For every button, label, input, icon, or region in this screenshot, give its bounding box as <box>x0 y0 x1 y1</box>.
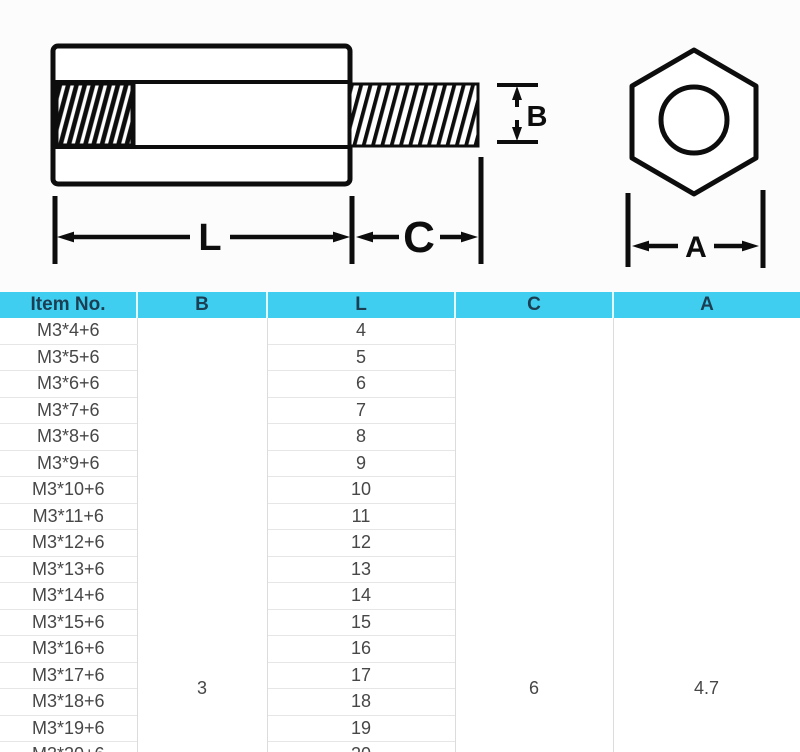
b-up-arrow-icon <box>512 86 522 100</box>
l-value-cell: 15 <box>267 609 455 636</box>
l-right-arrow-icon <box>333 232 350 243</box>
a-merged-cell: 4.7 <box>613 318 800 752</box>
end-view: A <box>628 50 763 268</box>
l-value-cell: 6 <box>267 371 455 398</box>
l-value-cell: 5 <box>267 344 455 371</box>
header-l: L <box>267 292 455 318</box>
c-right-arrow-icon <box>461 232 478 243</box>
c-value: 6 <box>456 675 613 701</box>
l-value-cell: 10 <box>267 477 455 504</box>
standoff-diagram: B L C <box>0 0 800 292</box>
item-no-cell: M3*14+6 <box>0 583 137 610</box>
item-no-cell: M3*12+6 <box>0 530 137 557</box>
item-no-cell: M3*5+6 <box>0 344 137 371</box>
b-down-arrow-icon <box>512 127 522 141</box>
l-value-cell: 18 <box>267 689 455 716</box>
item-no-cell: M3*11+6 <box>0 503 137 530</box>
bore-circle <box>661 87 727 153</box>
item-no-cell: M3*4+6 <box>0 318 137 344</box>
l-value-cell: 17 <box>267 662 455 689</box>
item-no-cell: M3*8+6 <box>0 424 137 451</box>
c-label: C <box>403 213 435 262</box>
item-no-cell: M3*7+6 <box>0 397 137 424</box>
item-no-cell: M3*15+6 <box>0 609 137 636</box>
header-a: A <box>613 292 800 318</box>
l-value-cell: 16 <box>267 636 455 663</box>
l-value-cell: 12 <box>267 530 455 557</box>
c-merged-cell: 6 <box>455 318 613 752</box>
l-value-cell: 20 <box>267 742 455 752</box>
technical-drawing: B L C <box>0 0 800 292</box>
item-no-cell: M3*13+6 <box>0 556 137 583</box>
item-no-cell: M3*19+6 <box>0 715 137 742</box>
internal-thread-hatch <box>56 83 133 146</box>
l-value-cell: 9 <box>267 450 455 477</box>
a-value: 4.7 <box>614 675 800 701</box>
item-no-cell: M3*18+6 <box>0 689 137 716</box>
a-label: A <box>685 231 707 264</box>
l-label: L <box>198 217 221 259</box>
spec-table: Item No. B L C A M3*4+63464.7M3*5+65M3*6… <box>0 292 800 752</box>
b-label: B <box>527 101 548 133</box>
side-view <box>53 46 478 184</box>
a-right-arrow-icon <box>742 241 759 252</box>
item-no-cell: M3*9+6 <box>0 450 137 477</box>
b-merged-cell: 3 <box>137 318 267 752</box>
table-row: M3*4+63464.7 <box>0 318 800 344</box>
l-value-cell: 14 <box>267 583 455 610</box>
b-value: 3 <box>138 675 267 701</box>
spec-table-body: M3*4+63464.7M3*5+65M3*6+66M3*7+67M3*8+68… <box>0 318 800 752</box>
header-c: C <box>455 292 613 318</box>
header-item-no: Item No. <box>0 292 137 318</box>
dimension-b: B <box>497 85 547 142</box>
l-value-cell: 19 <box>267 715 455 742</box>
l-value-cell: 7 <box>267 397 455 424</box>
l-value-cell: 13 <box>267 556 455 583</box>
header-row: Item No. B L C A <box>0 292 800 318</box>
item-no-cell: M3*17+6 <box>0 662 137 689</box>
l-value-cell: 8 <box>267 424 455 451</box>
header-b: B <box>137 292 267 318</box>
item-no-cell: M3*6+6 <box>0 371 137 398</box>
item-no-cell: M3*10+6 <box>0 477 137 504</box>
external-thread-stud <box>350 84 478 146</box>
spec-table-header: Item No. B L C A <box>0 292 800 318</box>
item-no-cell: M3*16+6 <box>0 636 137 663</box>
l-value-cell: 11 <box>267 503 455 530</box>
item-no-cell: M3*20+6 <box>0 742 137 752</box>
page: B L C <box>0 0 800 752</box>
l-value-cell: 4 <box>267 318 455 344</box>
